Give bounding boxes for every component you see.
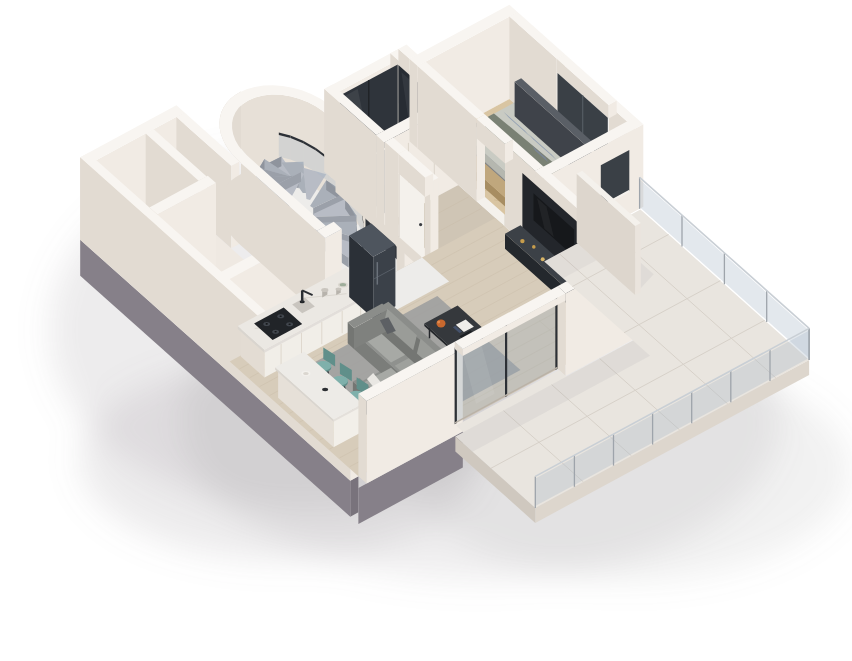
floor-plan-stage [0, 0, 852, 661]
apartment-3d-floor-plan [0, 0, 852, 661]
